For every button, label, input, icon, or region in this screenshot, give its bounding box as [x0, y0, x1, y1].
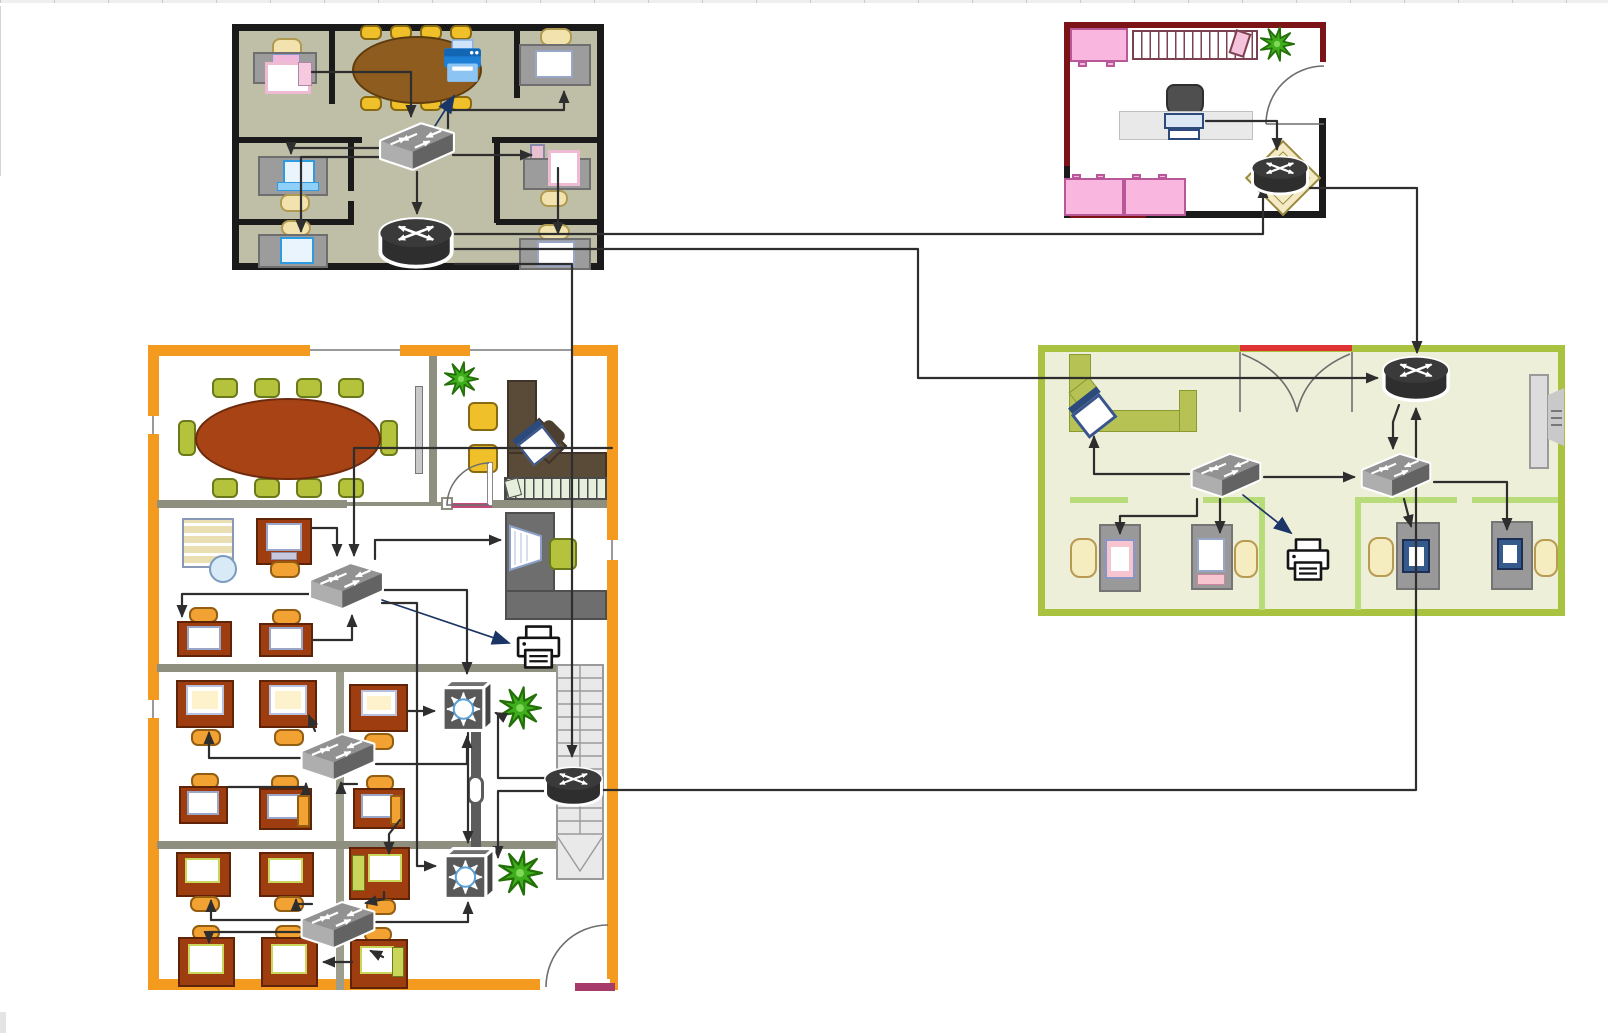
connector-switch-d2-to-hub-d1[interactable] [376, 737, 467, 764]
printer_blue-icon [441, 39, 484, 86]
connector-switch-a-to-desk-a-topright[interactable] [448, 92, 564, 128]
connector-switch-d3-to-hub-d2[interactable] [376, 903, 468, 922]
door-arc [546, 925, 608, 987]
router-icon [1381, 355, 1451, 405]
router-d[interactable] [543, 760, 604, 815]
connector-router-b-to-router-c[interactable] [1310, 188, 1417, 352]
hub-icon [441, 845, 496, 901]
switch-d1[interactable] [309, 559, 384, 612]
printer-c[interactable] [1284, 537, 1332, 584]
connector-switch-a-to-desk-a-midleft[interactable] [291, 148, 381, 153]
printer_line-icon [514, 623, 563, 673]
connector-switch-d1-to-hub-d2[interactable] [382, 603, 435, 866]
connector-switch-c2-to-desk-c4[interactable] [1434, 482, 1507, 529]
connector-switch-d1-to-media-desk[interactable] [375, 540, 500, 559]
connector-router-a-to-router-c[interactable] [455, 249, 1377, 378]
router-a[interactable] [377, 217, 455, 271]
switch-d2[interactable] [300, 731, 376, 782]
connector-switch-d1-to-printer-d[interactable] [382, 600, 509, 643]
double-door-arc [1240, 352, 1352, 412]
connector-desk-f3-to-switch-d2[interactable] [341, 783, 357, 784]
connector-router-c-to-switch-c2[interactable] [1393, 405, 1399, 448]
switch-icon [379, 120, 455, 172]
connector-switch-c2-to-desk-c3[interactable] [1404, 499, 1411, 526]
printer-a[interactable] [441, 39, 484, 86]
connector-desk-d-b2-to-switch-d1[interactable] [313, 616, 352, 640]
switch-icon [1358, 451, 1434, 499]
connector-switch-d1-to-desk-d-b1[interactable] [182, 594, 309, 616]
connector-desk-f3-to-desk-g3[interactable] [389, 820, 400, 853]
printer_line-icon [1284, 537, 1332, 584]
router-icon [1250, 152, 1310, 201]
connector-router-d-to-hub-d2[interactable] [498, 791, 546, 857]
switch-c1[interactable] [1188, 451, 1264, 499]
connector-switch-c1-to-angled-workstation[interactable] [1094, 437, 1189, 474]
switch-d3[interactable] [300, 899, 376, 950]
connector-switch-d2-to-desk-e1[interactable] [209, 733, 300, 758]
switch-icon [300, 899, 376, 950]
switch-icon [309, 559, 384, 612]
switch-c2[interactable] [1358, 451, 1434, 499]
printer-d[interactable] [514, 623, 563, 673]
router-c[interactable] [1381, 355, 1451, 405]
connector-switch-d3-to-desk-g1[interactable] [211, 901, 300, 920]
connector-router-d-to-router-c[interactable] [584, 409, 1416, 790]
network-floorplan-canvas [0, 0, 1608, 1033]
switch-a[interactable] [379, 120, 455, 172]
connector-desk-h3-to-switch-d3[interactable] [371, 951, 383, 957]
connector-switch-d3-to-desk-h1[interactable] [209, 932, 300, 942]
hub-icon [439, 677, 494, 733]
connector-router-a-to-router-b[interactable] [455, 187, 1263, 234]
hub-d2[interactable] [441, 845, 496, 901]
connector-desk-d-pc-to-switch-d1[interactable] [312, 528, 337, 555]
door-arc [447, 463, 489, 505]
connector-laptop-b-to-router-b[interactable] [1206, 121, 1277, 149]
router-icon [543, 760, 604, 815]
connector-switch-c1-to-printer-c[interactable] [1243, 495, 1291, 533]
door-arc [1266, 66, 1324, 124]
connector-switch-d2-to-desk-e2[interactable] [309, 716, 315, 731]
connector-switch-c1-to-desk-c1[interactable] [1120, 499, 1197, 533]
connection-layer [0, 0, 1608, 1033]
connector-switch-a-to-desk-a-botleft[interactable] [301, 157, 381, 231]
hub-d1[interactable] [439, 677, 494, 733]
router-icon [377, 217, 455, 271]
switch-icon [1188, 451, 1264, 499]
connector-desk-f1-to-switch-d2[interactable] [228, 784, 306, 787]
connector-desk-a-topleft-to-switch-a[interactable] [312, 72, 411, 116]
connector-router-d-to-hub-d1[interactable] [496, 713, 548, 778]
router-b[interactable] [1250, 152, 1310, 201]
switch-icon [300, 731, 376, 782]
